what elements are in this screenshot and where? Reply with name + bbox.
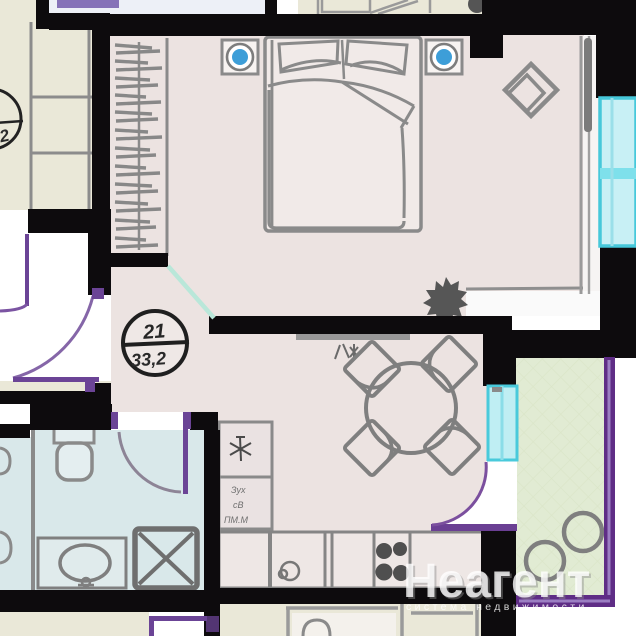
- svg-text:Зух: Зух: [231, 485, 246, 495]
- svg-text:33,2: 33,2: [130, 348, 166, 370]
- svg-text:сВ: сВ: [233, 500, 244, 510]
- svg-text:21: 21: [141, 320, 166, 344]
- svg-text:ПМ.М: ПМ.М: [224, 515, 249, 525]
- svg-text:система недвижимости: система недвижимости: [406, 601, 588, 613]
